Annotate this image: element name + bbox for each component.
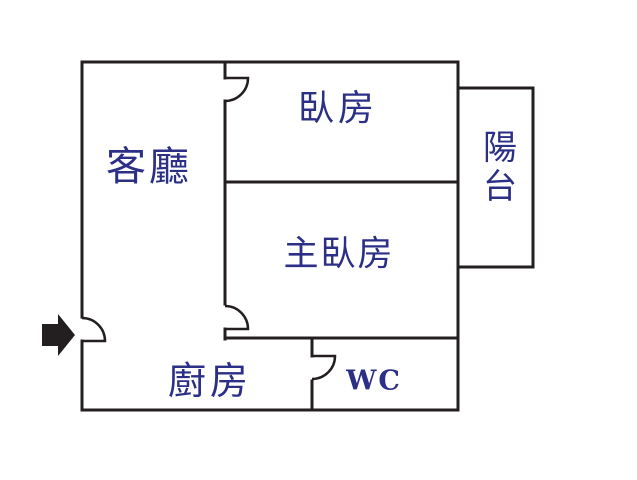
balcony-label: 陽台: [482, 129, 518, 207]
entrance-door-icon: [82, 318, 105, 341]
outer-walls: [82, 62, 458, 410]
wc-door-icon: [312, 356, 335, 379]
bedroom-door-icon: [225, 78, 248, 101]
bedroom-label: 臥房: [298, 91, 378, 127]
kitchen-label: 廚房: [168, 362, 252, 400]
wc-label: WC: [346, 368, 402, 395]
floor-plan: 客廳 臥房 主臥房 陽台 廚房 WC: [0, 0, 637, 480]
living-room-label: 客廳: [106, 147, 192, 187]
master-bedroom-door-icon: [225, 306, 248, 329]
master-bedroom-label: 主臥房: [283, 238, 394, 273]
entrance-arrow-icon: [42, 314, 75, 356]
